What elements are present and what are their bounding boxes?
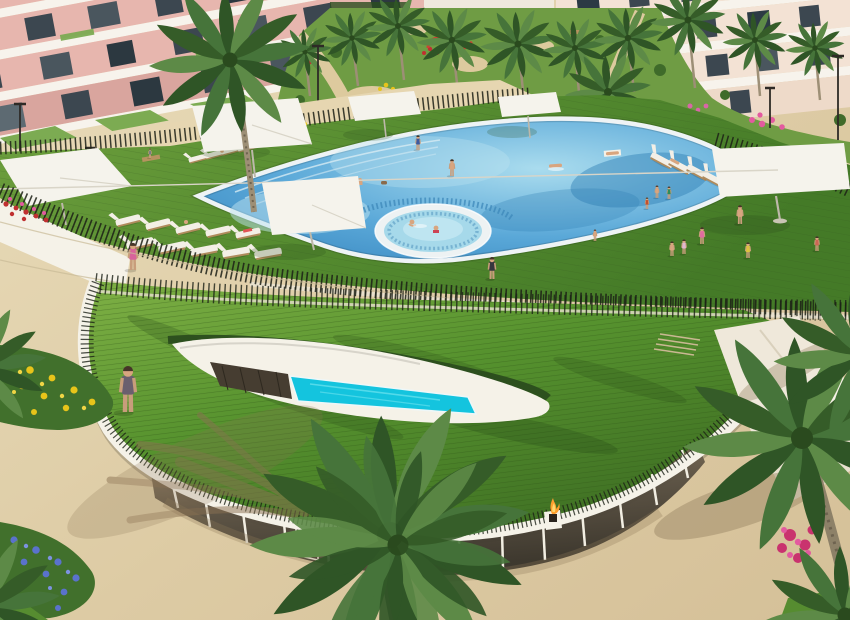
render-canvas (0, 0, 850, 620)
kids-pool (375, 204, 491, 258)
scene (0, 0, 850, 620)
person-lounger-sitter (184, 220, 188, 224)
dog (381, 181, 387, 185)
